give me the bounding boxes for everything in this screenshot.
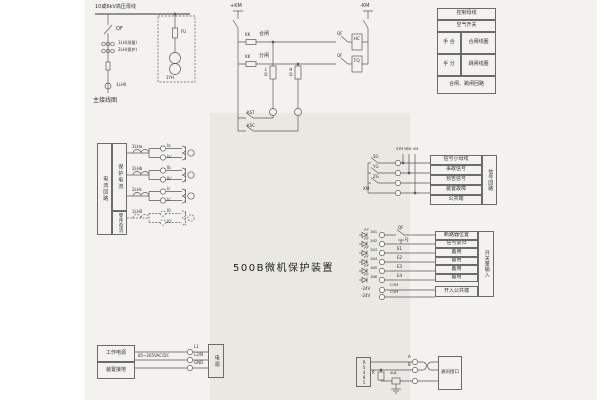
main-diagram-caption: 主接线图: [93, 98, 117, 105]
red-lamp-label: HD: [288, 67, 292, 77]
ct-measure-label: 1LH(测量): [118, 41, 137, 45]
kk-trip-label: KK: [245, 55, 250, 59]
power-voltage-label: 85~265VAC/DC: [138, 354, 169, 358]
comm-wire-a-label: A: [408, 355, 411, 359]
input-row-spare-2: 备用: [435, 257, 478, 266]
input-side-label: 开关量输入: [478, 231, 494, 297]
input-wire-qf: QF: [398, 226, 403, 230]
input-wire-fj: FJ: [405, 238, 408, 242]
signal-row-fault: 装置故障: [430, 185, 482, 195]
input-row-spare-3: 备用: [435, 265, 478, 274]
schematic-screen: 10或6kV高压母线 QF 1LH(测量) 2LH(保护) 1LH0 FU 1Y…: [0, 0, 600, 400]
input-wire-e2: E2: [397, 256, 402, 260]
breaker-label: QF: [116, 27, 123, 33]
signal-bus-sym: SYM: [396, 148, 403, 152]
green-lamp-label: LD: [263, 67, 267, 77]
signal-side-label: 信号回路: [482, 155, 497, 205]
control-table-manual-close: 手 合: [437, 32, 461, 54]
signal-bus-ybm: YBM: [404, 148, 412, 152]
opto-label-3: 1N3: [370, 249, 377, 253]
positive-bus-label: +KM: [230, 4, 242, 10]
power-terminal-gnd: GND: [194, 361, 203, 365]
terminal-ib: Ib: [167, 166, 171, 170]
fuse-label: FU: [181, 30, 186, 34]
control-table-close-coil: 合闸线圈: [461, 32, 496, 54]
zero-ct-label: 1LH0: [116, 83, 126, 87]
ct-label-zero: 1LH0: [132, 210, 142, 214]
power-terminal-l1: L1: [194, 345, 199, 349]
negative-bus-label: -KM: [360, 4, 369, 10]
terminal-ia: Ia: [167, 144, 171, 148]
ct-label-a: 2LHa: [132, 145, 142, 149]
pt-label: 1YH: [166, 76, 174, 80]
input-row-breaker-pos: 断路器位置: [435, 231, 478, 240]
zero-seq-column: 零序电流: [112, 211, 127, 235]
opto-label-1: 1N1: [370, 231, 377, 235]
signal-table-header: 信号小母线: [430, 155, 482, 165]
input-wire-e3: E3: [397, 265, 402, 269]
wiring-lines: [0, 0, 600, 400]
input-row-spare-4: 备用: [435, 274, 478, 283]
device-ground-cell: 装置接地: [97, 362, 135, 379]
terminal-i0: I0: [167, 209, 171, 213]
bus-label: 10或6kV高压母线: [95, 5, 136, 11]
contact-xm-label: XM-: [363, 187, 371, 191]
device-title: 500B微机保护装置: [233, 259, 334, 274]
opto-label-4: 1N4: [370, 258, 377, 262]
current-loop-column: 电流回路: [97, 143, 112, 235]
close-label: 合闸: [259, 32, 269, 38]
terminal-ib2: Ib': [167, 177, 172, 181]
signal-row-accident: 事故信号: [430, 165, 482, 175]
terminal-ic2: Ic': [167, 198, 171, 202]
input-wire-e1: E1: [397, 247, 402, 251]
ct-label-c: 2LHc: [132, 188, 142, 192]
close-coil-label: HC: [354, 38, 361, 43]
signal-row-prealarm: 预告信号: [430, 175, 482, 185]
control-table-caption: 合闸、跳闸回路: [437, 76, 496, 94]
input-row-common: 开入公共端: [435, 286, 478, 297]
contact-sg-label: SG: [373, 155, 379, 159]
opto-label-2: 1N2: [370, 240, 377, 244]
rs485-box: RS485: [356, 357, 371, 387]
signal-bus-xm: XM: [413, 148, 418, 152]
control-table-manual-trip: 手 分: [437, 54, 461, 76]
minus24v-label-2: -24V: [361, 294, 370, 298]
manual-close-label: KSC: [247, 124, 255, 128]
terminal-i02: I0': [167, 220, 172, 224]
trip-coil-label: TQ: [354, 60, 360, 65]
control-table-trip-coil: 跳闸线圈: [461, 54, 496, 76]
input-wire-e4: E4: [397, 274, 402, 278]
contact-yg-label: YG: [373, 165, 379, 169]
manual-trip-label: KST: [247, 111, 255, 115]
terminal-ic: Ic: [167, 187, 170, 191]
com-label-1: COM: [390, 284, 398, 288]
trip-label: 分闸: [259, 54, 269, 60]
qf-aux-close-label: QF: [337, 32, 342, 36]
power-module-box: 电源: [208, 344, 224, 378]
working-power-cell: 工作电源: [97, 345, 135, 362]
main-single-line-diagram: [95, 13, 195, 93]
ct-protect-label: 2LH(保护): [118, 48, 137, 52]
com-label-2: COM: [390, 291, 398, 295]
communication-lines: [371, 359, 438, 393]
kk-close-label: KK: [245, 33, 250, 37]
opto-label-5: 1N5: [370, 267, 377, 271]
minus24v-label-1: -24V: [361, 287, 370, 291]
terminal-ia2: Ia': [167, 155, 172, 159]
opto-label-6: 1N6: [370, 276, 377, 280]
control-table-breaker-row: 空气开关: [437, 20, 496, 32]
comm-wire-b-label: B: [408, 363, 411, 367]
ct-label-b: 2LHb: [132, 167, 142, 171]
contact-zg-label: ZG: [373, 175, 379, 179]
protect-current-column: 保护电流: [112, 143, 127, 211]
input-row-spare-1: 备用: [435, 248, 478, 257]
termination-resistor-label: R: [372, 371, 375, 375]
power-terminal-l2n: L2/N: [194, 353, 203, 357]
qf-aux-trip-label: QF: [337, 54, 342, 58]
input-row-signal-reset: 信号复归: [435, 240, 478, 249]
control-table-bus-row: 控制母线: [437, 8, 496, 20]
comm-interface-box: 通讯接口: [438, 356, 462, 390]
arrester-label: 4LB: [390, 372, 397, 376]
signal-row-common: 公共端: [430, 195, 482, 205]
